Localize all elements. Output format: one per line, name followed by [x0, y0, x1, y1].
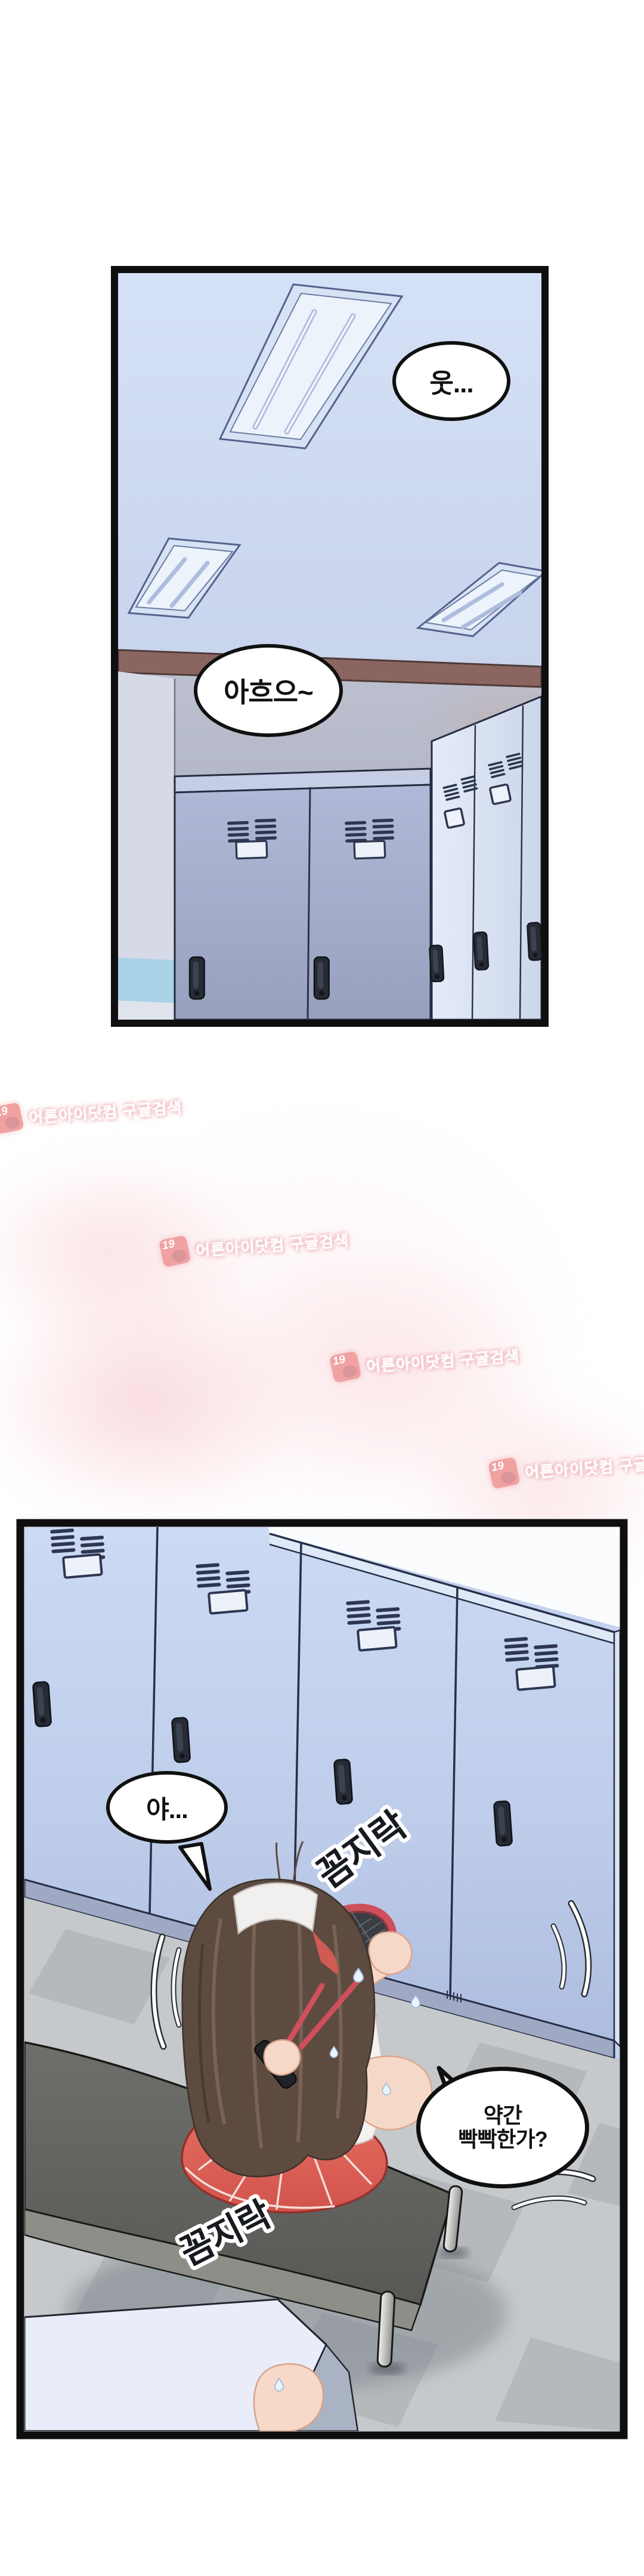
speech-text: 빡빡한가?: [458, 2128, 547, 2151]
girl-leg: [254, 2364, 323, 2431]
girl-left-hand: [264, 2040, 300, 2075]
left-wall: [118, 671, 175, 1020]
speech-bubble: 아흐으~: [194, 644, 343, 737]
age-19-badge-icon: 19: [488, 1457, 521, 1490]
speech-text: 야...: [146, 1789, 188, 1826]
speech-bubble: 야...: [106, 1771, 228, 1844]
badge-19-label: 19: [161, 1237, 176, 1253]
bench-leg: [377, 2291, 395, 2367]
badge-19-label: 19: [490, 1459, 505, 1475]
age-19-badge-icon: 19: [0, 1102, 24, 1135]
webtoon-page: 꼼지락 꼼지락 19 어른아이닷컴 구글검색 19 어른아이닷컴 구글검색 19…: [0, 0, 644, 2576]
speech-text: 약간: [484, 2104, 522, 2128]
speech-bubble: 약간 빡빡한가?: [416, 2067, 589, 2188]
speech-text: 아흐으~: [224, 671, 313, 710]
locker-block-right: [429, 696, 542, 1020]
age-19-badge-icon: 19: [159, 1235, 191, 1268]
speech-text: 웃...: [429, 362, 473, 400]
comic-artwork: 꼼지락 꼼지락: [0, 0, 644, 2576]
speech-bubble: 웃...: [392, 341, 510, 421]
panel-2-locker-room: 꼼지락 꼼지락: [24, 1527, 620, 2431]
badge-19-label: 19: [332, 1353, 346, 1368]
panel-1-locker-room-ceiling: [118, 273, 605, 1020]
girl-hand: [369, 1932, 412, 1974]
locker-block-center: [175, 769, 431, 1020]
age-19-badge-icon: 19: [329, 1351, 362, 1383]
badge-19-label: 19: [0, 1104, 9, 1120]
